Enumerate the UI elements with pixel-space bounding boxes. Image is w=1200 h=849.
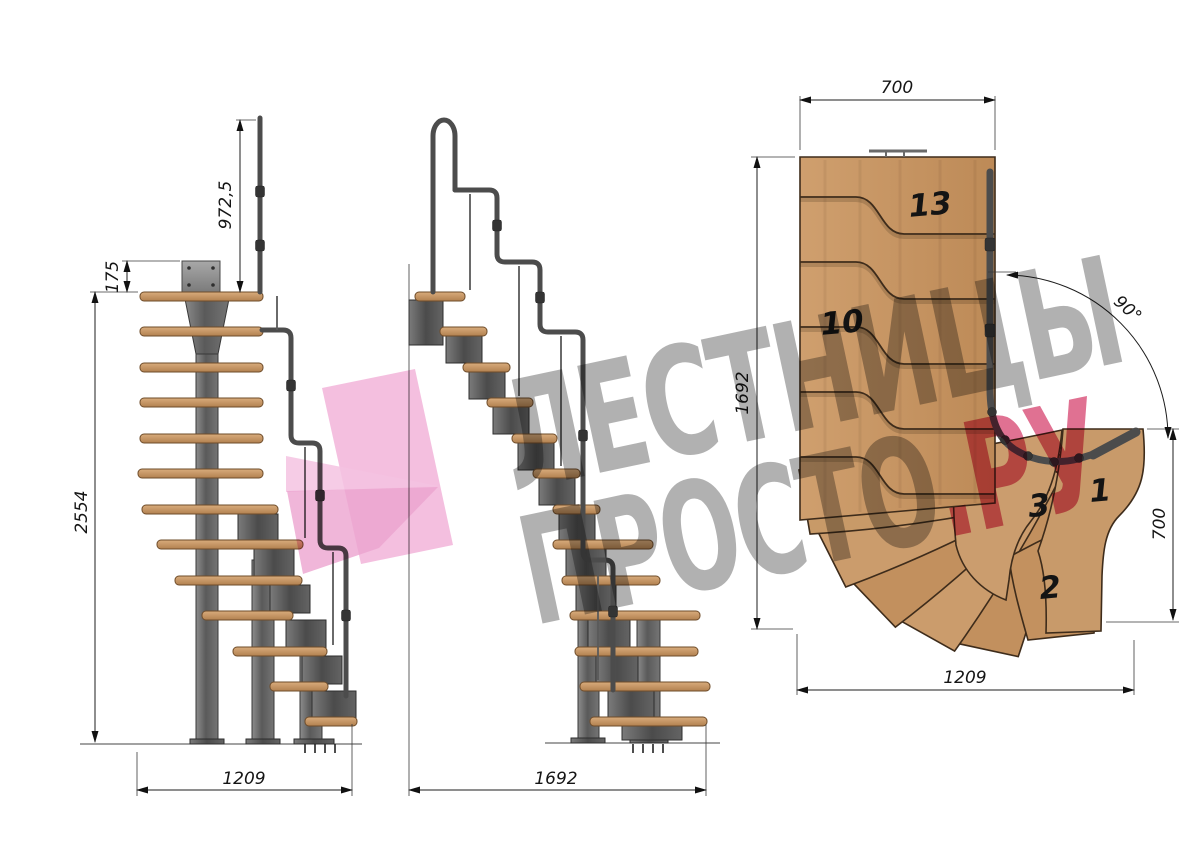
step-label-10: 10 bbox=[819, 303, 865, 343]
dim-rail-height: 972,5 bbox=[216, 120, 256, 292]
column-funnel bbox=[184, 294, 230, 354]
staircase-drawing: 972,5 175 2554 1209 bbox=[0, 0, 1200, 849]
base-plate bbox=[190, 739, 224, 744]
dim-plan-top-width: 700 bbox=[800, 78, 995, 150]
central-column bbox=[196, 295, 218, 741]
dim-turn-angle: 90° bbox=[988, 272, 1168, 438]
side-elevation-view: 972,5 175 2554 1209 bbox=[72, 118, 362, 796]
floor-anchors bbox=[305, 744, 335, 753]
plan-handrail bbox=[985, 172, 1136, 467]
dim-plan-left-length: 1692 bbox=[733, 157, 795, 629]
top-bracket bbox=[869, 151, 927, 157]
mounting-plate bbox=[182, 261, 220, 292]
dim-label: 1209 bbox=[222, 769, 265, 789]
dim-label: 972,5 bbox=[216, 181, 236, 230]
dim-label: 1692 bbox=[733, 371, 753, 414]
front-elevation-view: 1692 bbox=[409, 120, 720, 796]
step-label-1: 1 bbox=[1088, 472, 1113, 510]
step-label-2: 2 bbox=[1038, 569, 1063, 607]
dim-label: 700 bbox=[1150, 508, 1170, 540]
dim-label: 175 bbox=[103, 261, 123, 293]
dim-label: 700 bbox=[881, 78, 913, 98]
plan-view: 13 10 3 1 2 700 1692 700 1209 bbox=[733, 78, 1179, 695]
dim-total-height: 2554 bbox=[72, 292, 138, 742]
step-label-3: 3 bbox=[1027, 487, 1052, 525]
blueprint-canvas: 972,5 175 2554 1209 bbox=[0, 0, 1200, 849]
dim-label: 90° bbox=[1109, 292, 1145, 327]
handrail-loop bbox=[433, 120, 455, 292]
dim-label: 1692 bbox=[534, 769, 577, 789]
step-label-13: 13 bbox=[907, 185, 953, 225]
floor-anchors bbox=[633, 744, 663, 753]
base-plate bbox=[294, 739, 334, 744]
dim-top-offset: 175 bbox=[103, 261, 180, 293]
dim-label: 1209 bbox=[943, 668, 986, 688]
base-plate bbox=[246, 739, 280, 744]
dim-label: 2554 bbox=[72, 490, 92, 533]
base-plate bbox=[571, 738, 605, 743]
